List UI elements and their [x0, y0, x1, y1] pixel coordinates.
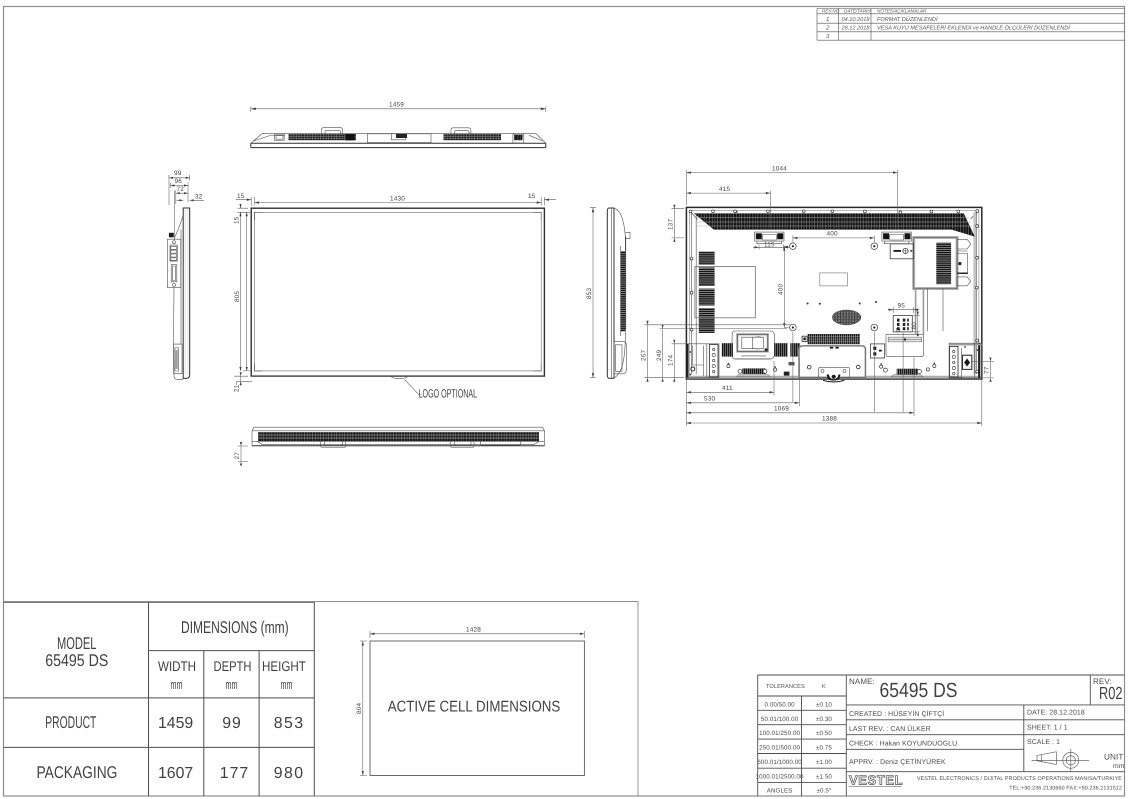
- svg-text:CREATED : HÜSEYİN ÇİFTÇİ: CREATED : HÜSEYİN ÇİFTÇİ: [849, 710, 944, 718]
- svg-text:±0.75: ±0.75: [816, 745, 832, 752]
- svg-text:250.01/500.00: 250.01/500.00: [759, 745, 800, 752]
- svg-text:1: 1: [826, 16, 829, 23]
- svg-text:±1.00: ±1.00: [816, 759, 832, 766]
- svg-text:VESTEL ELECTRONICS / DIJITAL P: VESTEL ELECTRONICS / DIJITAL PRODUCTS OP…: [917, 776, 1122, 782]
- svg-text:04.10.2018: 04.10.2018: [842, 17, 871, 23]
- svg-text:HEIGHT: HEIGHT: [262, 658, 306, 674]
- svg-text:TEL:+90.236.2130660 FAX:+90.23: TEL:+90.236.2130660 FAX:+90.236.2131512: [1009, 786, 1122, 792]
- svg-text:1459: 1459: [389, 102, 404, 109]
- svg-text:530: 530: [704, 395, 716, 402]
- svg-text:100.01/250.00: 100.01/250.00: [759, 730, 800, 737]
- svg-text:99: 99: [222, 715, 242, 732]
- svg-text:K: K: [822, 684, 826, 690]
- svg-text:1000.01/2500.00: 1000.01/2500.00: [756, 774, 804, 781]
- svg-text:1459: 1459: [158, 715, 193, 732]
- svg-text:±0.5°: ±0.5°: [817, 788, 832, 795]
- svg-text:50.01/100.00: 50.01/100.00: [761, 716, 799, 723]
- svg-text:SCALE : 1: SCALE : 1: [1027, 739, 1060, 746]
- svg-text:400: 400: [777, 283, 784, 295]
- svg-text:DATE/TARIH: DATE/TARIH: [844, 8, 871, 13]
- svg-text:mm: mm: [281, 677, 293, 692]
- svg-text:77: 77: [984, 366, 991, 374]
- svg-text:CHECK : Hakan KOYUNDUOGLU: CHECK : Hakan KOYUNDUOGLU: [849, 741, 957, 748]
- svg-text:21: 21: [234, 384, 241, 392]
- svg-text:1044: 1044: [772, 165, 787, 172]
- svg-text:1069: 1069: [774, 405, 789, 412]
- svg-text:PRODUCT: PRODUCT: [45, 713, 96, 732]
- svg-text:980: 980: [274, 765, 305, 782]
- svg-text:VESA KUYU MESAFELERİ EKLENDİ v: VESA KUYU MESAFELERİ EKLENDİ ve HANDLE Ö…: [877, 24, 1070, 31]
- svg-text:65495 DS: 65495 DS: [880, 679, 958, 702]
- svg-text:32: 32: [195, 193, 203, 200]
- svg-text:PACKAGING: PACKAGING: [37, 763, 118, 782]
- svg-text:15: 15: [237, 193, 245, 200]
- svg-text:174: 174: [668, 354, 675, 366]
- svg-text:DATE: 28.12.2018: DATE: 28.12.2018: [1027, 710, 1085, 717]
- svg-text:177: 177: [220, 765, 249, 782]
- svg-text:411: 411: [722, 385, 733, 392]
- svg-text:NAME:: NAME:: [849, 677, 875, 686]
- svg-text:ANGLES: ANGLES: [767, 788, 793, 795]
- svg-text:415: 415: [719, 186, 731, 193]
- svg-text:95: 95: [898, 303, 906, 310]
- svg-text:ACTIVE CELL DIMENSIONS: ACTIVE CELL DIMENSIONS: [388, 699, 560, 716]
- svg-text:65495 DS: 65495 DS: [45, 651, 108, 670]
- svg-text:mm: mm: [226, 677, 238, 692]
- svg-text:REV.NO: REV.NO: [822, 8, 840, 13]
- svg-text:500.01/1000.00: 500.01/1000.00: [757, 759, 802, 766]
- svg-text:805: 805: [234, 290, 241, 302]
- svg-text:72: 72: [177, 186, 185, 193]
- svg-text:27: 27: [234, 452, 241, 460]
- svg-text:VESTEL: VESTEL: [849, 773, 903, 788]
- svg-text:1607: 1607: [158, 765, 193, 782]
- svg-text:28.12.2018: 28.12.2018: [841, 25, 871, 31]
- svg-text:±0.10: ±0.10: [816, 702, 832, 709]
- svg-text:853: 853: [274, 715, 305, 732]
- svg-text:15: 15: [528, 193, 536, 200]
- svg-text:APPRV. : Deniz ÇETİNYÜREK: APPRV. : Deniz ÇETİNYÜREK: [849, 758, 946, 766]
- svg-text:±0.50: ±0.50: [816, 730, 832, 737]
- svg-text:1430: 1430: [390, 195, 405, 202]
- svg-text:FORMAT DÜZENLENDİ: FORMAT DÜZENLENDİ: [877, 16, 938, 23]
- svg-text:TOLERANCES: TOLERANCES: [766, 684, 805, 690]
- svg-text:267: 267: [641, 349, 648, 361]
- svg-text:2: 2: [825, 24, 830, 31]
- svg-text:96: 96: [175, 178, 183, 185]
- svg-text:115: 115: [764, 242, 775, 249]
- svg-text:mm: mm: [171, 677, 183, 692]
- svg-text:±0.30: ±0.30: [816, 716, 832, 723]
- svg-text:mm: mm: [1113, 763, 1125, 770]
- svg-text:15: 15: [234, 216, 241, 224]
- svg-text:SHEET: 1 / 1: SHEET: 1 / 1: [1027, 725, 1068, 732]
- svg-text:WIDTH: WIDTH: [158, 658, 196, 674]
- svg-text:853: 853: [586, 287, 593, 299]
- svg-text:1428: 1428: [466, 627, 481, 634]
- svg-text:0.00/50.00: 0.00/50.00: [764, 702, 795, 709]
- svg-text:DIMENSIONS (mm): DIMENSIONS (mm): [181, 618, 289, 637]
- svg-text:99: 99: [174, 170, 182, 177]
- svg-text:137: 137: [668, 218, 675, 230]
- svg-text:UNIT: UNIT: [1104, 753, 1124, 762]
- svg-text:NOTES/AÇIKLAMALAR: NOTES/AÇIKLAMALAR: [877, 8, 927, 13]
- svg-text:249: 249: [656, 349, 663, 361]
- svg-text:400: 400: [827, 231, 839, 238]
- svg-text:80: 80: [911, 322, 918, 330]
- svg-text:LOGO OPTIONAL: LOGO OPTIONAL: [419, 387, 478, 401]
- svg-text:R02: R02: [1099, 683, 1123, 703]
- svg-text:804: 804: [356, 702, 363, 714]
- svg-text:1388: 1388: [822, 416, 837, 423]
- svg-text:DEPTH: DEPTH: [214, 658, 252, 674]
- svg-text:±1.50: ±1.50: [816, 774, 832, 781]
- svg-text:LAST REV. : CAN ÜLKER: LAST REV. : CAN ÜLKER: [849, 725, 931, 733]
